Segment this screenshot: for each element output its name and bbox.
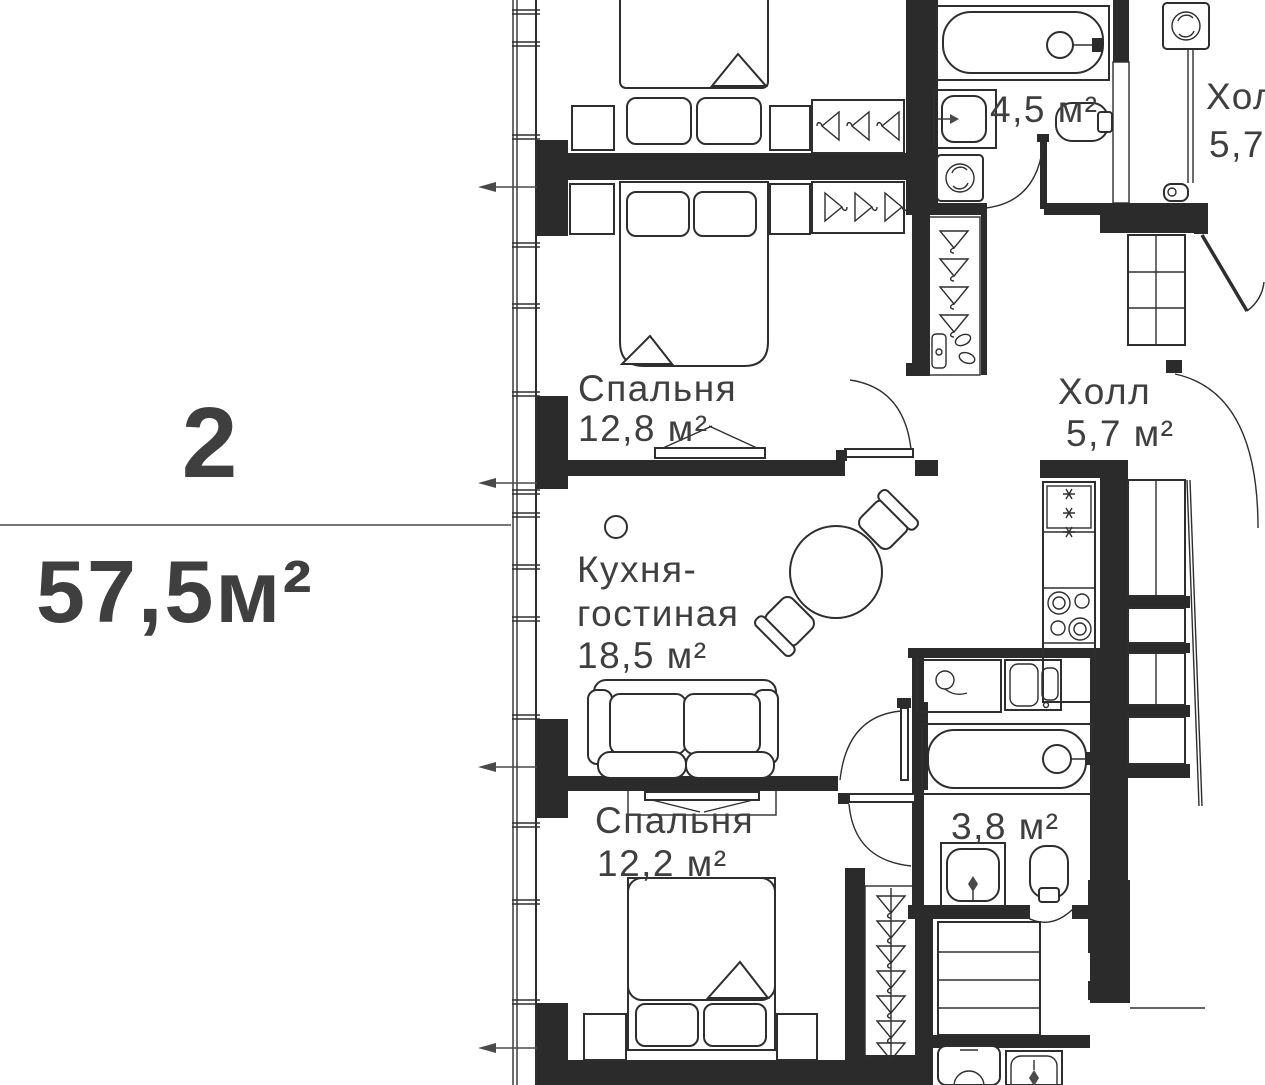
- door-arc-icon: [840, 698, 911, 780]
- floor-lamp-icon: [605, 516, 627, 538]
- kitchen-living-name-2: гостиная: [577, 593, 739, 634]
- bathroom-1: 4,5 м²: [934, 6, 1112, 209]
- shoes-icon: [958, 351, 976, 366]
- stove-icon: [1048, 592, 1091, 640]
- pillow-icon: [694, 192, 756, 236]
- washing-machine-icon: [937, 155, 983, 201]
- dimension-arrow-icon: [478, 1043, 537, 1053]
- neighbor-unit-bottom: [938, 1046, 1062, 1085]
- fridge-icon: [1047, 486, 1091, 537]
- pillow-icon: [697, 98, 761, 144]
- floor-plan-svg: Спальня 12,8 м²: [0, 0, 1265, 1085]
- bedroom-1-name: Спальня: [578, 368, 737, 409]
- pillow-icon: [627, 192, 689, 236]
- nightstand-icon: [770, 184, 810, 234]
- neighbor-corridor: Хол 5,7: [1163, 3, 1265, 201]
- entrance-door-icon: [1194, 224, 1264, 311]
- bedroom-2-name: Спальня: [595, 800, 754, 841]
- hanger-icon: [940, 259, 968, 281]
- neighbor-hall-name: Хол: [1206, 76, 1265, 117]
- dimension-markers: 2 57,5м²: [0, 182, 537, 1053]
- bedroom-1-area: 12,8 м²: [578, 408, 709, 449]
- dimension-arrow-icon: [478, 182, 537, 192]
- bathtub-icon: [937, 6, 1109, 80]
- nightstand-icon: [570, 184, 614, 234]
- hanger-icon: [940, 287, 968, 309]
- sink-icon: [941, 843, 1005, 907]
- hanger-icon: [940, 315, 968, 337]
- toilet-icon: [1030, 846, 1068, 902]
- hanger-icon: [847, 112, 869, 140]
- pillow-icon: [636, 1004, 698, 1046]
- neighbor-hall-area: 5,7: [1209, 124, 1265, 165]
- nightstand-icon: [777, 1014, 817, 1060]
- wardrobe-icon: [812, 100, 904, 153]
- hanger-icon: [855, 193, 877, 221]
- unit-total-area: 57,5м²: [36, 542, 314, 641]
- dining-table-icon: [753, 488, 920, 658]
- snowflake-icon: [1063, 489, 1075, 499]
- bedroom-2-area: 12,2 м²: [597, 843, 728, 884]
- hanger-icon: [817, 112, 839, 140]
- door-arc-icon: [1166, 360, 1258, 528]
- pillow-icon: [627, 98, 691, 144]
- bathroom-1-area: 4,5 м²: [990, 89, 1098, 130]
- hall-name: Холл: [1058, 371, 1151, 412]
- neighbor-closet-row: [1128, 480, 1202, 806]
- unit-rooms-count: 2: [182, 387, 239, 499]
- nightstand-icon: [770, 106, 810, 150]
- washing-machine-icon: [1163, 3, 1209, 49]
- nightstand-icon: [584, 1014, 626, 1060]
- pillow-icon: [704, 1004, 766, 1046]
- window-pier: [537, 719, 568, 818]
- sink-icon: [1006, 1051, 1062, 1085]
- floor-plan: Спальня 12,8 м²: [0, 0, 1265, 1085]
- door-arc-icon: [1026, 908, 1074, 922]
- mirror-icon: [936, 349, 942, 355]
- bathroom-2-area: 3,8 м²: [951, 806, 1059, 847]
- wardrobe-closet: [928, 217, 980, 375]
- wardrobe-icon: [812, 182, 907, 233]
- snowflake-icon: [1063, 508, 1075, 518]
- bathtub-icon: [922, 724, 1094, 794]
- bedroom-1: Спальня 12,8 м²: [570, 182, 913, 461]
- kitchen-counter-icon: [1043, 482, 1095, 702]
- hanger-icon: [877, 112, 899, 140]
- bedroom-top-partial: [572, 0, 904, 153]
- washing-machine-icon: [938, 1046, 1000, 1085]
- hanger-icon: [940, 231, 968, 253]
- bathroom-2: 3,8 м²: [917, 660, 1094, 922]
- closet-grid-icon: [1128, 235, 1185, 345]
- door-arc-icon: [836, 380, 913, 461]
- mirror-icon: [932, 334, 946, 368]
- sofa-icon: [588, 680, 778, 778]
- hanger-icon: [825, 193, 847, 221]
- bath-cabinet-icon: [917, 660, 1061, 712]
- dimension-arrow-icon: [478, 478, 537, 488]
- door-arc-icon: [838, 793, 915, 866]
- kitchen-living-name-1: Кухня-: [577, 549, 697, 590]
- sink-icon: [934, 90, 996, 148]
- kitchen-living-area: 18,5 м²: [577, 635, 708, 676]
- shelf-unit-icon: [938, 922, 1040, 1035]
- dimension-arrow-icon: [478, 762, 537, 772]
- shoes-icon: [954, 332, 973, 348]
- kitchen-living: Кухня- гостиная 18,5 м²: [577, 482, 1095, 780]
- nightstand-icon: [572, 106, 614, 150]
- hall-area: 5,7 м²: [1066, 413, 1174, 454]
